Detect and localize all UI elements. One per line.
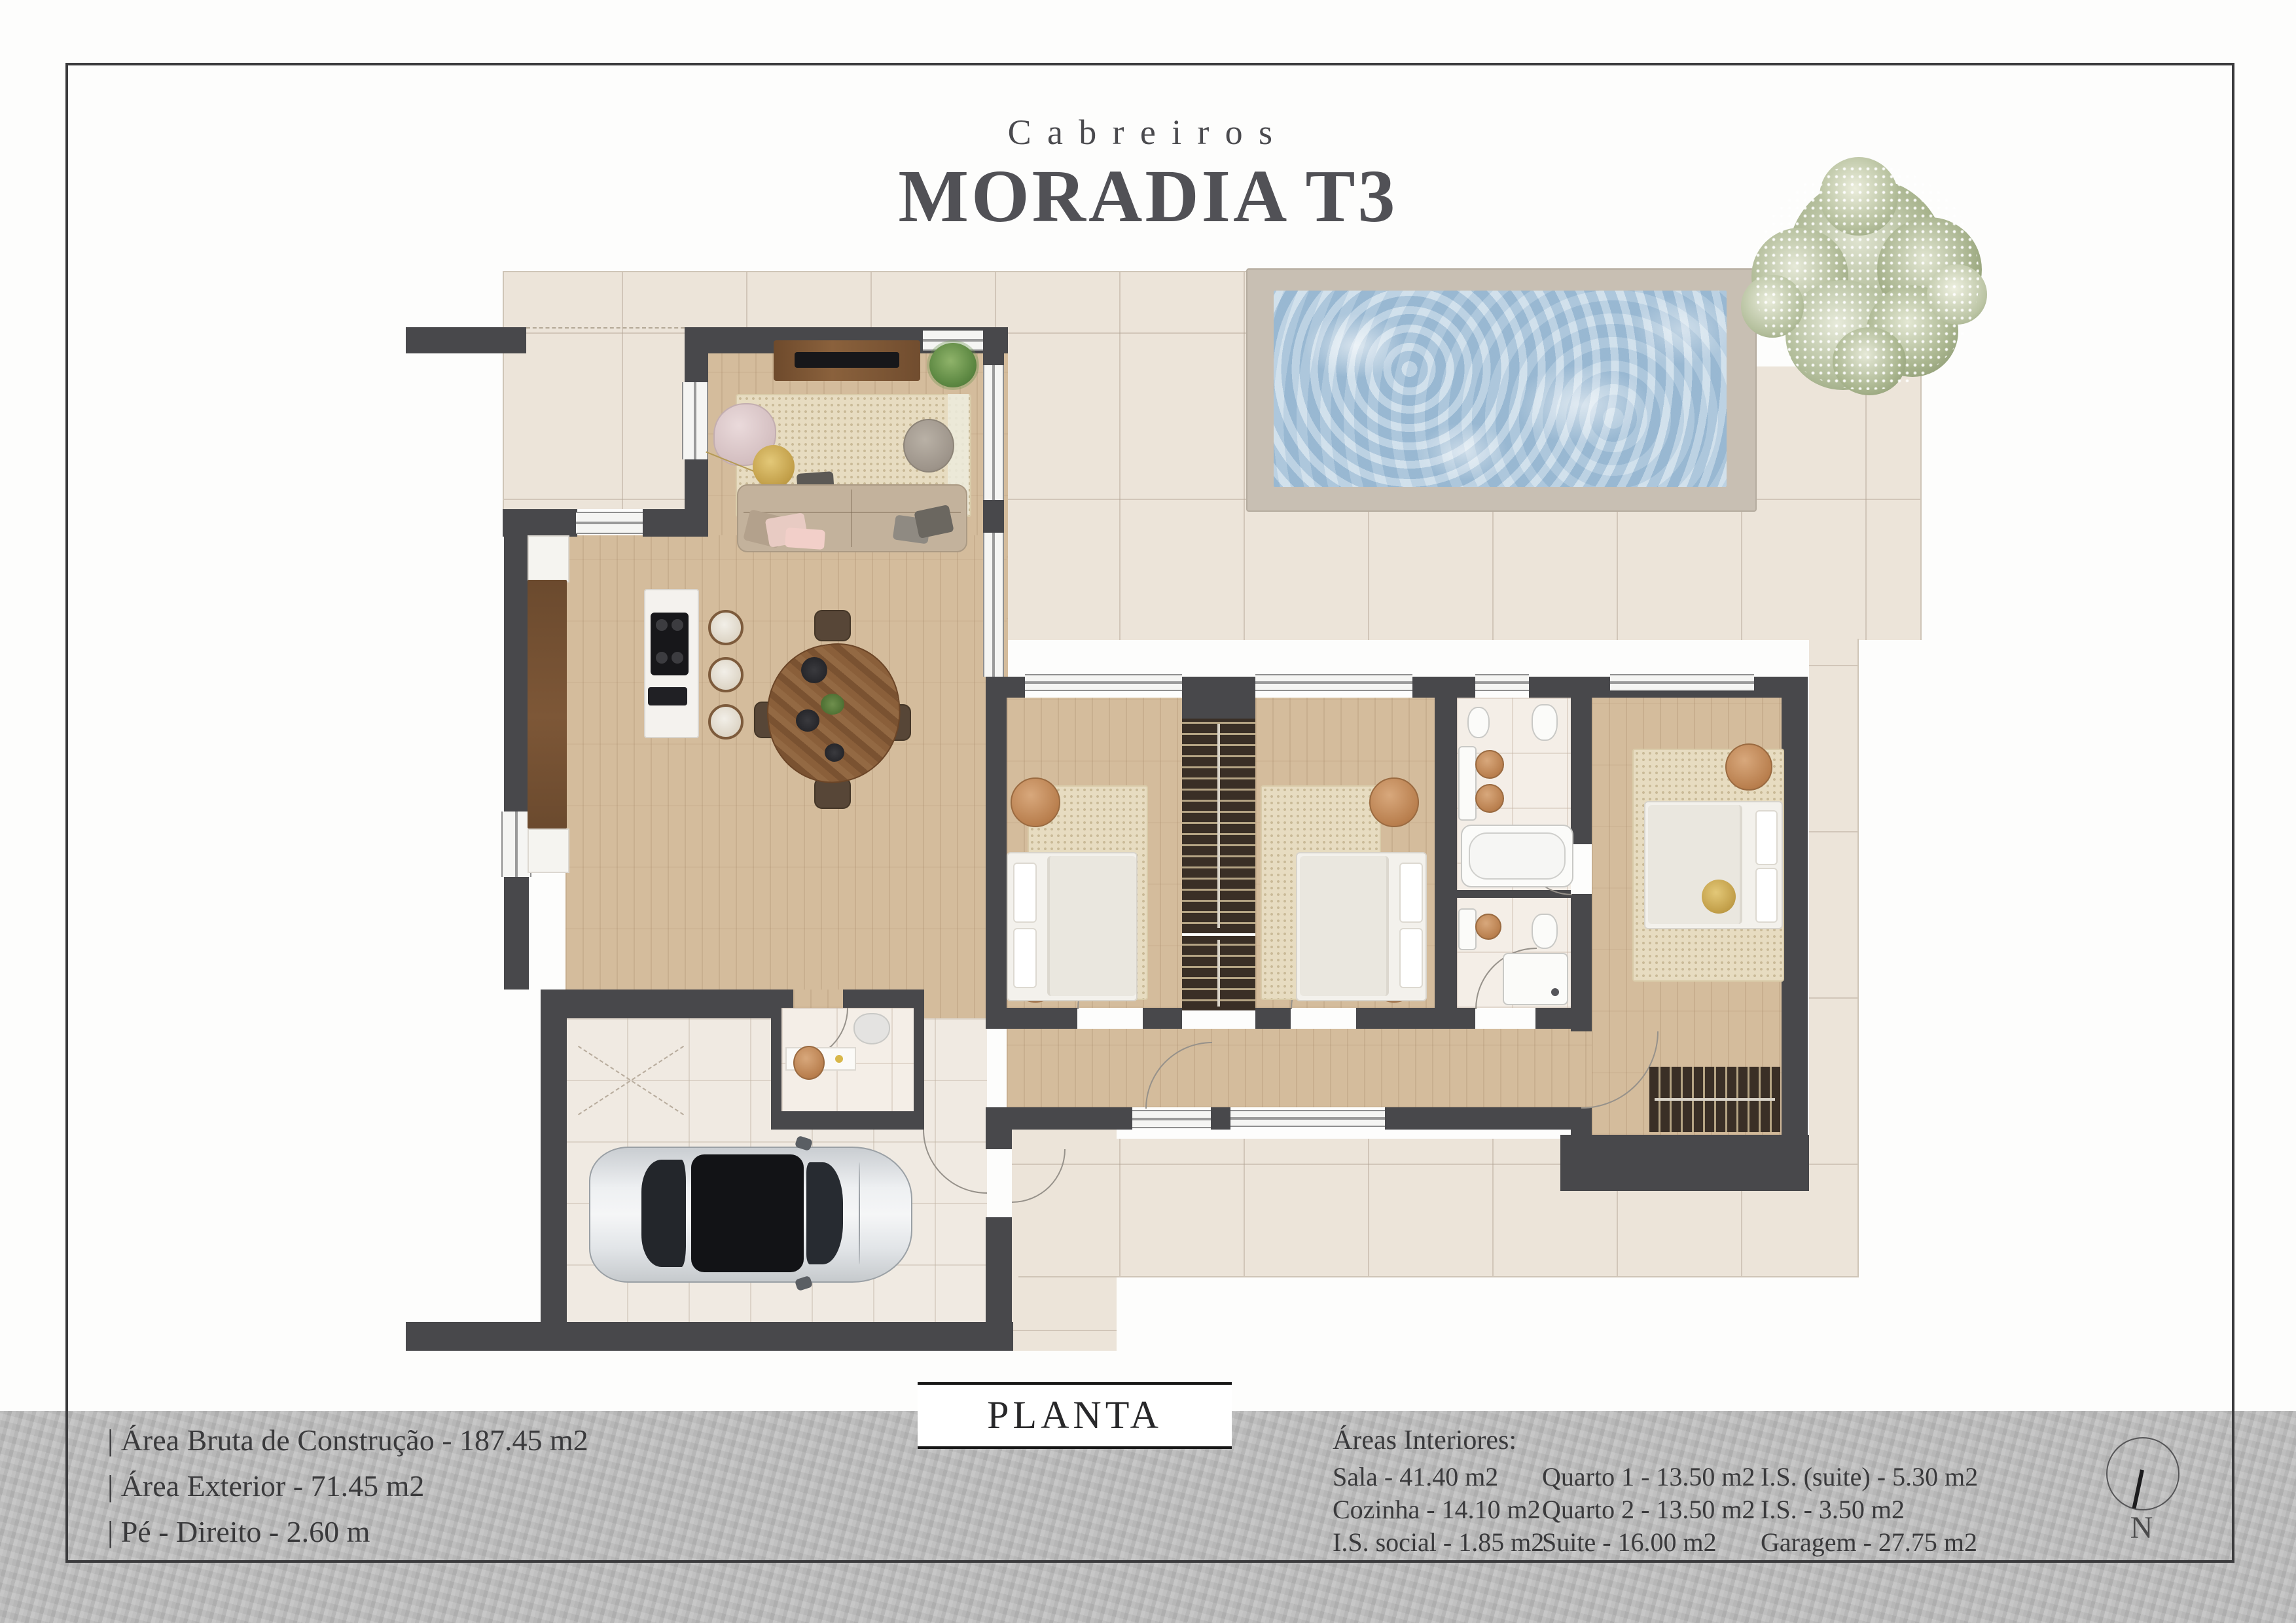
interior-is-social: I.S. social - 1.85 m2 [1333, 1529, 1544, 1559]
bed-quarto2-pillow [1399, 863, 1423, 923]
window-hall-south [1230, 1110, 1385, 1127]
wall-bedrooms-north-pier1 [986, 677, 1025, 698]
bed-quarto1-duvet [1047, 856, 1136, 996]
floor-plan [0, 0, 2296, 1387]
wall-quarto2-east [1435, 698, 1457, 1029]
bed-quarto1-pillow [1013, 928, 1037, 988]
window-suite [1610, 674, 1754, 691]
wall-bedrooms-north-pier3 [1412, 677, 1475, 698]
deck-pool-south [1246, 509, 1922, 640]
stat-pe-direito: | Pé - Direito - 2.60 m [107, 1516, 370, 1550]
interior-quarto2: Quarto 2 - 13.50 m2 [1542, 1496, 1755, 1526]
bed-suite-pillow [1755, 810, 1778, 865]
bar-stool-3 [708, 704, 744, 740]
interior-areas-title: Áreas Interiores: [1333, 1424, 1516, 1457]
wall-south-mid-seg [1211, 1107, 1230, 1130]
interior-is: I.S. - 3.50 m2 [1761, 1496, 1905, 1526]
side-table-suite [1725, 743, 1772, 791]
wall-bedsouth-seg4 [1356, 1008, 1475, 1029]
bidet [1467, 707, 1490, 738]
wall-kitchen-west [504, 535, 529, 990]
wall-garage-north [541, 990, 771, 1018]
roof-overhang-dashed-line [526, 327, 685, 329]
interior-suite: Suite - 16.00 m2 [1542, 1529, 1717, 1559]
slider-living-east-a [983, 365, 1004, 500]
compass-n-label: N [2115, 1512, 2168, 1547]
car-rear-glass [641, 1160, 686, 1267]
dining-chair-top [814, 610, 851, 641]
sofa-pillow-pink [785, 527, 825, 550]
wall-quarto1-west [986, 698, 1007, 1029]
wc-door-gap [793, 990, 843, 1008]
wall-bedsouth-seg5 [1535, 1008, 1592, 1029]
shower-tray [1503, 953, 1568, 1005]
shower-drain [1551, 988, 1559, 996]
hob-burner [656, 619, 668, 631]
mirror-bath-suite-2 [1475, 784, 1504, 813]
wall-living-west-lower [685, 459, 708, 537]
bed-quarto1 [1007, 852, 1138, 1001]
toilet-bath-is [1532, 914, 1558, 949]
bar-stool-2 [708, 657, 744, 692]
deck-edge-right-upper [1920, 366, 1922, 640]
wall-garage-east-upper [986, 1130, 1012, 1149]
floor-lamp-shade [753, 445, 795, 488]
wall-living-west-upper [685, 353, 708, 382]
hob-burner [672, 619, 683, 631]
wall-bedsouth-seg2 [1143, 1008, 1182, 1029]
wall-south-east-seg [1385, 1107, 1592, 1130]
dining-centerpiece-plant [821, 694, 844, 715]
deck-edge-bottom [1018, 1276, 1859, 1277]
window-kitchen-north [576, 512, 643, 534]
dining-plate-1 [801, 657, 827, 683]
wall-terrace-stub [406, 327, 526, 353]
hob-burner [672, 652, 683, 664]
wall-kitchen-jog-east [643, 509, 686, 537]
bed-quarto2 [1296, 852, 1427, 1001]
stat-area-bruta: | Área Bruta de Construção - 187.45 m2 [107, 1424, 588, 1458]
stat-area-exterior: | Área Exterior - 71.45 m2 [107, 1470, 424, 1504]
bed-suite-pillow [1755, 868, 1778, 923]
island-sink [648, 687, 687, 705]
kitchen-wall-counter [528, 580, 567, 829]
floor-lamp-suite [1702, 880, 1736, 914]
deck-terrace-top-left [503, 272, 685, 509]
interior-is-suite: I.S. (suite) - 5.30 m2 [1761, 1463, 1978, 1493]
car [589, 1141, 910, 1285]
plan-label-box: PLANTA [918, 1382, 1232, 1449]
wall-bedsouth-seg1 [1007, 1008, 1077, 1029]
tree-flower-speckle [1754, 165, 1979, 390]
closet-suite [1649, 1067, 1780, 1132]
wall-garage-south [406, 1322, 1013, 1351]
deck-edge-right-lower [1857, 639, 1859, 1276]
deck-edge-left [503, 271, 504, 509]
interior-quarto1: Quarto 1 - 13.50 m2 [1542, 1463, 1755, 1493]
mirror-bath-is [1475, 914, 1501, 940]
wc-soap [835, 1055, 843, 1063]
compass-needle [2132, 1469, 2144, 1508]
toilet-wc-social [853, 1013, 890, 1044]
wardrobe-rail [1217, 940, 1220, 1007]
plan-label: PLANTA [987, 1393, 1162, 1438]
kitchen-appliance-bottom [528, 829, 569, 873]
bed-quarto2-pillow [1399, 928, 1423, 988]
bathtub [1461, 825, 1573, 887]
pool-water [1274, 291, 1727, 487]
window-quarto1 [1025, 674, 1182, 691]
side-table-quarto1-top [1011, 777, 1060, 827]
dining-plate-2 [796, 709, 819, 732]
deck-pool-west [1008, 272, 1247, 640]
car-roof [691, 1154, 804, 1272]
closet-rail [1655, 1098, 1775, 1101]
wall-garage-east-lower [986, 1217, 1012, 1322]
tv-screen [795, 352, 899, 368]
vanity-bath-is [1458, 908, 1477, 950]
wardrobe-rail [1217, 724, 1220, 928]
front-door-panel [1132, 1110, 1211, 1128]
island-hob [651, 613, 689, 675]
interior-garagem: Garagem - 27.75 m2 [1761, 1529, 1977, 1559]
interior-sala: Sala - 41.40 m2 [1333, 1463, 1498, 1493]
wall-south-west-seg [986, 1107, 1132, 1130]
window-bathroom-suite [1475, 674, 1529, 691]
plant-living [929, 343, 977, 387]
wall-suite-west-a [1571, 698, 1592, 844]
side-table-quarto2-top [1369, 777, 1419, 827]
wardrobe-quarto2 [1182, 936, 1255, 1010]
tree [1741, 154, 1992, 406]
garage-storage-mark [576, 1042, 686, 1120]
wall-bedsouth-seg3 [1255, 1008, 1291, 1029]
car-hood-line [859, 1162, 860, 1264]
bed-quarto2-duvet [1300, 856, 1389, 996]
toilet-bath-suite [1532, 704, 1558, 741]
wardrobe-quarto1 [1182, 719, 1255, 933]
wall-garage-west [541, 1018, 567, 1322]
floor-hallway [1007, 1029, 1592, 1107]
wall-living-east-pier2 [983, 500, 1004, 533]
mirror-bath-suite-1 [1475, 750, 1504, 779]
floor-plan-sheet: Cabreiros MORADIA T3 [0, 0, 2296, 1623]
kitchen-appliance-top [528, 535, 569, 582]
bar-stool-1 [708, 610, 744, 645]
interior-cozinha: Cozinha - 14.10 m2 [1333, 1496, 1541, 1526]
hob-burner [656, 652, 668, 664]
window-living-west [682, 382, 708, 459]
bed-quarto1-pillow [1013, 863, 1037, 923]
wall-wardrobe-top [1182, 698, 1255, 719]
dining-plate-3 [825, 743, 844, 762]
north-compass [2106, 1437, 2179, 1510]
deck-north-strip [685, 272, 1008, 327]
slider-living-east-b [983, 533, 1004, 677]
wall-suite-east [1782, 677, 1808, 1145]
wc-sink [793, 1046, 825, 1080]
coffee-table [903, 419, 954, 473]
wall-living-east-pier1 [983, 339, 1004, 365]
bathtub-inner [1469, 832, 1566, 880]
window-quarto2 [1255, 674, 1412, 691]
wall-bedrooms-north-pier2 [1182, 677, 1255, 698]
vanity-bath-suite [1458, 746, 1477, 821]
wall-kitchen-jog-west [503, 509, 577, 537]
sofa-split-line [851, 490, 852, 547]
car-windshield [806, 1162, 843, 1264]
wall-suite-south [1560, 1135, 1809, 1191]
